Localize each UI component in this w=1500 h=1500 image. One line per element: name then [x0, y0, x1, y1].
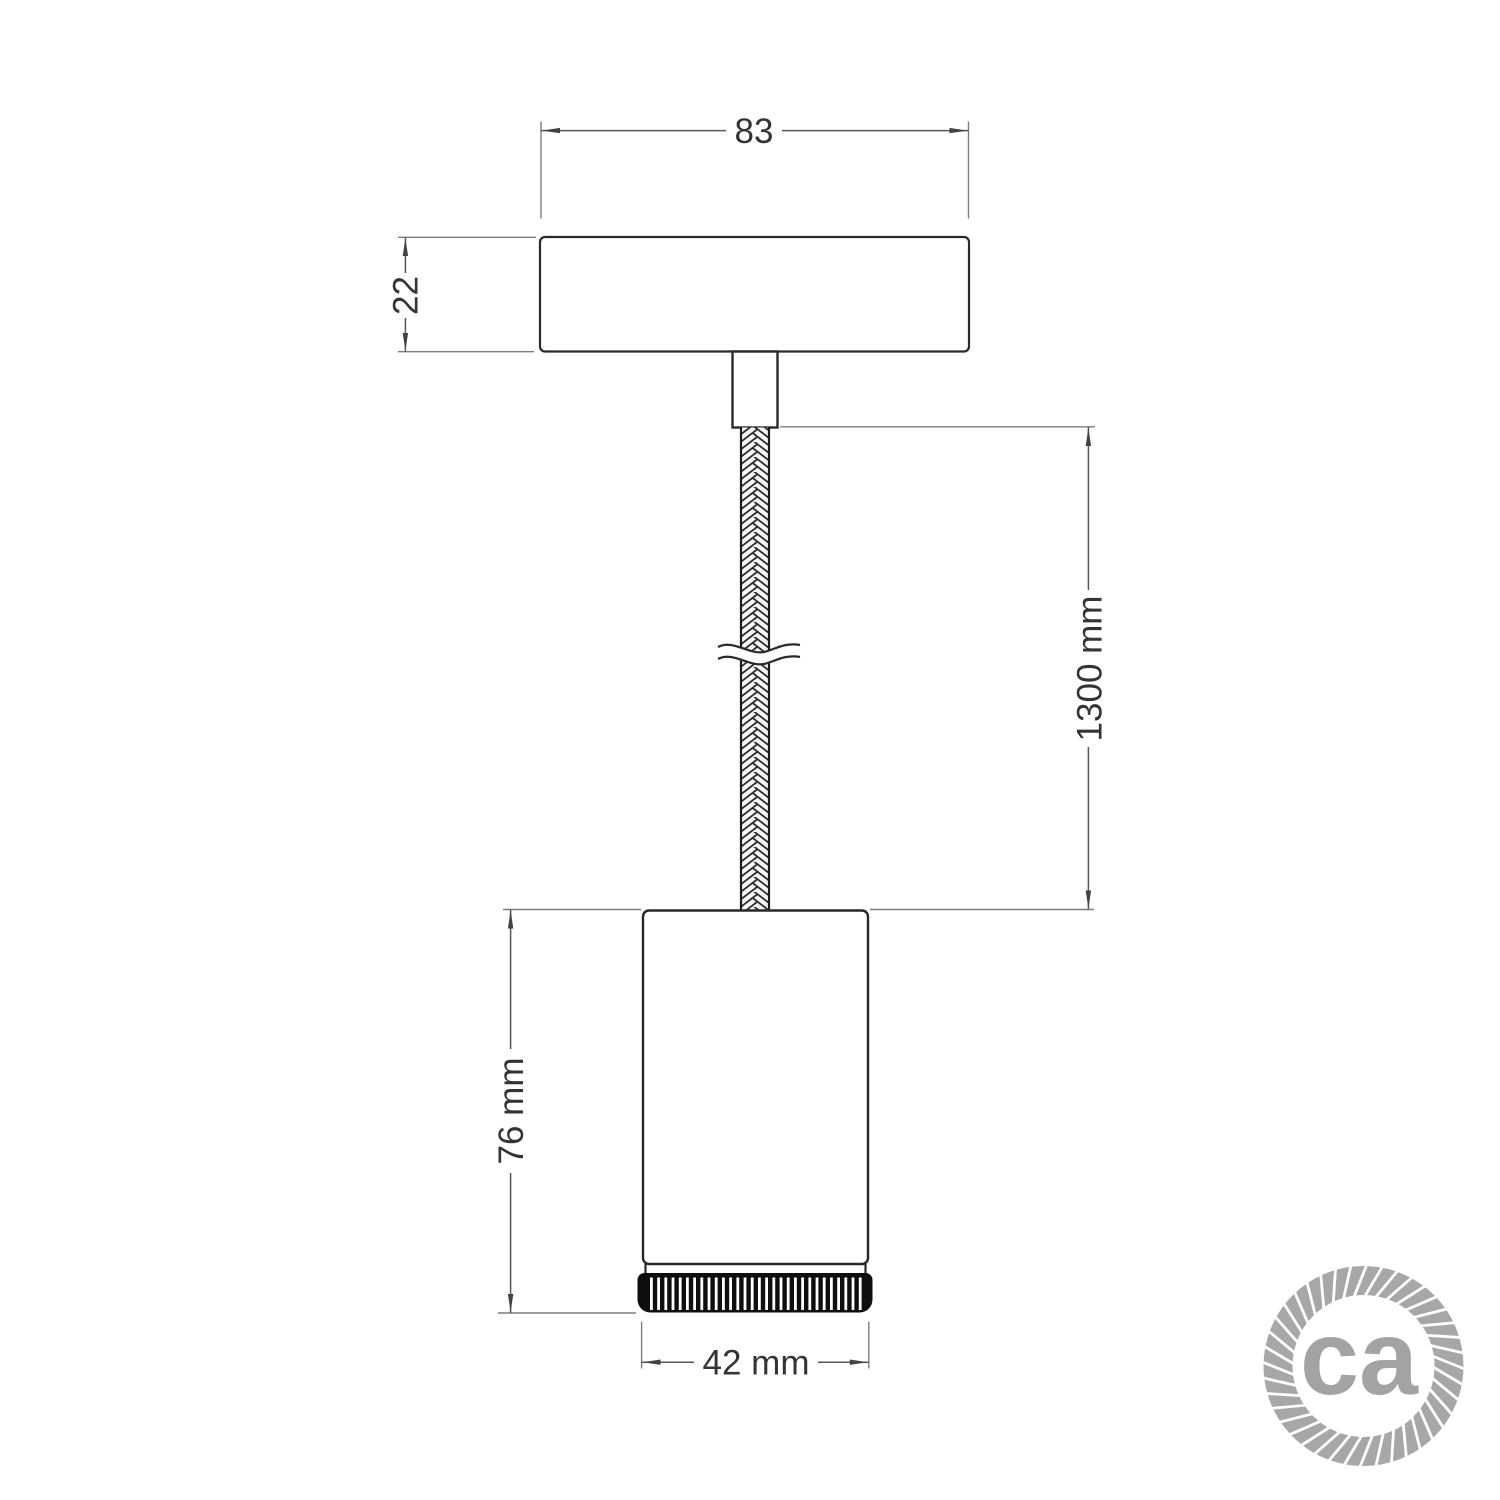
svg-text:ca: ca	[1300, 1299, 1419, 1417]
svg-text:83: 83	[735, 112, 774, 151]
svg-text:42 mm: 42 mm	[703, 1344, 810, 1383]
svg-text:76 mm: 76 mm	[492, 1058, 531, 1165]
svg-text:1300 mm: 1300 mm	[1071, 596, 1110, 742]
svg-text:22: 22	[387, 276, 426, 315]
